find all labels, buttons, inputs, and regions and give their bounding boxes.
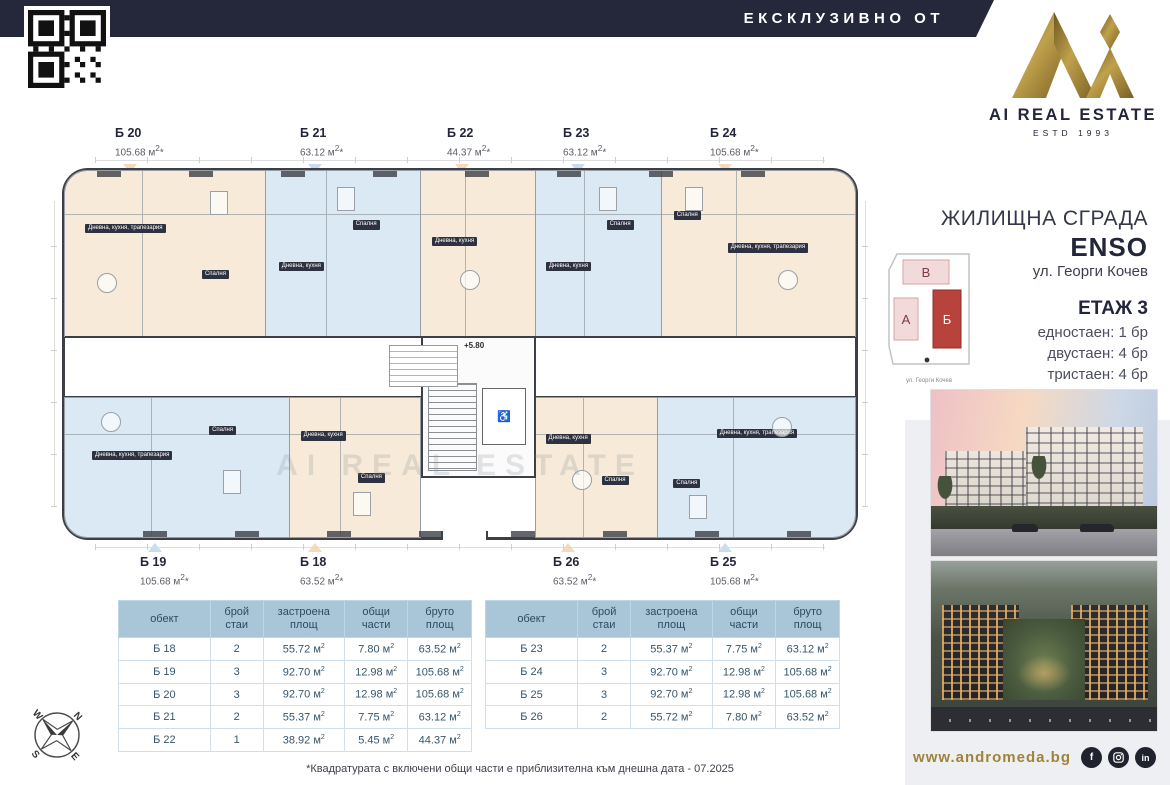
table-header: обектбройстаизастроенаплощобщи частибрут…	[486, 601, 840, 638]
table-furniture	[460, 270, 480, 290]
building-render	[945, 451, 1026, 514]
green-podium	[931, 506, 1157, 529]
cell-built-area: 38.92 м2	[263, 729, 344, 752]
svg-text:А: А	[902, 312, 911, 327]
linkedin-icon[interactable]: in	[1135, 747, 1156, 768]
cell-rooms: 2	[578, 638, 631, 661]
tree	[1030, 456, 1048, 482]
apartment-b19: Дневна, кухня, трапезария Спалня	[65, 398, 290, 537]
apartment-b23: Дневна, кухня Спалня	[536, 171, 662, 336]
building-type-label: ЖИЛИЩНА СГРАДА	[848, 207, 1148, 231]
cell-rooms: 3	[578, 661, 631, 684]
table-row: Б 23255.37 м27.75 м263.12 м2	[486, 638, 840, 661]
site-map-diagram: В А Б	[881, 250, 977, 372]
website-row: www.andromeda.bg f in	[900, 747, 1156, 768]
table-row: Б 21255.37 м27.75 м263.12 м2	[119, 706, 472, 729]
bed-furniture	[685, 187, 703, 211]
room-label: Дневна, кухня, трапезария	[728, 243, 808, 253]
column-header: обект	[119, 601, 211, 638]
room-label: Спалня	[607, 220, 634, 230]
entrance-glow	[1017, 655, 1071, 692]
cell-unit: Б 25	[486, 683, 578, 706]
cell-unit: Б 23	[486, 638, 578, 661]
area-table-left: обектбройстаизастроенаплощобщи частибрут…	[118, 600, 472, 752]
cell-common-area: 12.98 м2	[712, 661, 776, 684]
agency-logo: AI REAL ESTATE ESTD 1993	[978, 4, 1168, 138]
column-header: бройстаи	[210, 601, 263, 638]
room-label: Дневна, кухня	[279, 262, 324, 272]
tree	[936, 476, 954, 502]
cell-gross-area: 63.52 м2	[776, 706, 840, 729]
table-row: Б 25392.70 м212.98 м2105.68 м2	[486, 683, 840, 706]
cell-common-area: 7.75 м2	[712, 638, 776, 661]
column-header: застроенаплощ	[631, 601, 712, 638]
unit-label-b24: Б 24 105.68 м2*	[710, 126, 820, 173]
apartment-b24: Дневна, кухня, трапезария Спалня	[662, 171, 855, 336]
table-header: обектбройстаизастроенаплощобщи частибрут…	[119, 601, 472, 638]
cell-rooms: 2	[578, 706, 631, 729]
room-label: Дневна, кухня	[432, 237, 477, 247]
room-label: Дневна, кухня, трапезария	[92, 451, 172, 461]
cell-unit: Б 26	[486, 706, 578, 729]
logo-estd: ESTD 1993	[978, 128, 1168, 138]
column-header: брутоплощ	[776, 601, 840, 638]
facebook-icon[interactable]: f	[1081, 747, 1102, 768]
room-label: Дневна, кухня	[546, 434, 591, 444]
room-label: Спалня	[353, 220, 380, 230]
cell-gross-area: 105.68 м2	[776, 661, 840, 684]
car	[1012, 524, 1038, 532]
floor-plan: Дневна, кухня, трапезария Спалня Дневна,…	[62, 168, 858, 540]
cell-common-area: 12.98 м2	[712, 683, 776, 706]
table-row: Б 18255.72 м27.80 м263.52 м2	[119, 638, 472, 661]
site-map-street-label: ул. Георги Кочев	[881, 378, 977, 384]
cell-gross-area: 105.68 м2	[408, 661, 472, 684]
car	[1080, 524, 1114, 532]
compass-s: S	[29, 749, 42, 762]
cell-built-area: 55.72 м2	[631, 706, 712, 729]
table-furniture	[778, 270, 798, 290]
dimension-line	[95, 157, 825, 164]
level-mark: +5.80	[464, 341, 484, 350]
unit-label-b23: Б 23 63.12 м2*	[563, 126, 673, 173]
column-header: обект	[486, 601, 578, 638]
cell-built-area: 55.37 м2	[263, 706, 344, 729]
column-header: общи части	[344, 601, 408, 638]
area-table-right: обектбройстаизастроенаплощобщи частибрут…	[485, 600, 840, 729]
cell-unit: Б 21	[119, 706, 211, 729]
dimension-line	[51, 201, 58, 507]
logo-title: AI REAL ESTATE	[978, 106, 1168, 125]
cell-gross-area: 105.68 м2	[408, 683, 472, 706]
svg-text:В: В	[922, 265, 931, 280]
flyer-page: ЕКСКЛУЗИВНО ОТ AI REAL ESTATE ESTD 1993 …	[0, 0, 1170, 785]
cell-unit: Б 22	[119, 729, 211, 752]
wheelchair-icon: ♿	[497, 410, 511, 423]
table-furniture	[97, 273, 117, 293]
cell-common-area: 5.45 м2	[344, 729, 408, 752]
column-header: общи части	[712, 601, 776, 638]
cell-built-area: 55.37 м2	[631, 638, 712, 661]
cell-rooms: 3	[210, 661, 263, 684]
bed-furniture	[223, 470, 241, 494]
street	[931, 529, 1157, 556]
compass-rose: N E S W	[24, 702, 90, 768]
table-row: Б 26255.72 м27.80 м263.52 м2	[486, 706, 840, 729]
unit-mix-item: двустаен: 4 бр	[1038, 343, 1148, 364]
building-photo-aerial	[930, 560, 1158, 732]
street	[931, 707, 1157, 731]
unit-mix-item: едностаен: 1 бр	[1038, 322, 1148, 343]
exclusive-banner: ЕКСКЛУЗИВНО ОТ	[0, 0, 994, 37]
instagram-icon[interactable]	[1108, 747, 1129, 768]
banner-label: ЕКСКЛУЗИВНО ОТ	[744, 10, 944, 27]
apartment-b21: Дневна, кухня Спалня	[266, 171, 420, 336]
svg-text:Б: Б	[943, 312, 952, 327]
cell-unit: Б 24	[486, 661, 578, 684]
room-label: Спалня	[202, 270, 229, 280]
cell-gross-area: 63.12 м2	[776, 638, 840, 661]
compass-w: W	[30, 708, 45, 723]
cell-unit: Б 20	[119, 683, 211, 706]
apartment-b20: Дневна, кухня, трапезария Спалня	[65, 171, 266, 336]
room-label: Дневна, кухня	[301, 431, 346, 441]
dimension-line	[95, 544, 825, 551]
compass-icon: N E S W	[24, 702, 90, 768]
table-row: Б 20392.70 м212.98 м2105.68 м2	[119, 683, 472, 706]
apartment-b25: Дневна, кухня, трапезария Спалня	[658, 398, 856, 537]
cell-common-area: 7.80 м2	[344, 638, 408, 661]
room-label: Спалня	[674, 211, 701, 221]
unit-label-b21: Б 21 63.12 м2*	[300, 126, 410, 173]
cell-built-area: 92.70 м2	[263, 683, 344, 706]
cell-built-area: 92.70 м2	[631, 661, 712, 684]
unit-label-b20: Б 20 105.68 м2*	[115, 126, 225, 173]
cell-rooms: 2	[210, 638, 263, 661]
cell-rooms: 3	[578, 683, 631, 706]
bed-furniture	[210, 191, 228, 215]
site-map: В А Б ул. Георги Кочев	[881, 250, 977, 384]
building-entrance	[441, 531, 488, 540]
cell-built-area: 92.70 м2	[263, 661, 344, 684]
room-label: Спалня	[673, 479, 700, 489]
watermark: AI REAL ESTATE	[276, 449, 644, 483]
column-header: брутоплощ	[408, 601, 472, 638]
apartment-b22: Дневна, кухня	[421, 171, 536, 336]
table-row: Б 24392.70 м212.98 м2105.68 м2	[486, 661, 840, 684]
room-label: Дневна, кухня, трапезария	[85, 224, 165, 234]
plan-info-box	[389, 345, 458, 387]
room-label: Дневна, кухня	[546, 262, 591, 272]
cell-common-area: 7.80 м2	[712, 706, 776, 729]
cell-unit: Б 18	[119, 638, 211, 661]
column-header: бройстаи	[578, 601, 631, 638]
cell-rooms: 3	[210, 683, 263, 706]
table-row: Б 19392.70 м212.98 м2105.68 м2	[119, 661, 472, 684]
table-row: Б 22138.92 м25.45 м244.37 м2	[119, 729, 472, 752]
website-link[interactable]: www.andromeda.bg	[913, 749, 1071, 766]
cell-gross-area: 63.12 м2	[408, 706, 472, 729]
disclaimer-note: *Квадратурата с включени общи части е пр…	[140, 763, 900, 775]
room-label: Спалня	[209, 426, 236, 436]
cell-unit: Б 19	[119, 661, 211, 684]
cell-gross-area: 63.52 м2	[408, 638, 472, 661]
building-photo-sunset	[930, 389, 1158, 557]
unit-mix-item: тристаен: 4 бр	[1038, 364, 1148, 385]
elevator: ♿	[482, 388, 526, 445]
cell-built-area: 55.72 м2	[263, 638, 344, 661]
cell-rooms: 2	[210, 706, 263, 729]
qr-code-icon	[28, 10, 106, 88]
table-furniture	[101, 412, 121, 432]
cell-rooms: 1	[210, 729, 263, 752]
cell-gross-area: 105.68 м2	[776, 683, 840, 706]
cell-gross-area: 44.37 м2	[408, 729, 472, 752]
bed-furniture	[689, 495, 707, 519]
wall-piers	[97, 171, 824, 177]
qr-code	[24, 6, 110, 92]
cell-common-area: 12.98 м2	[344, 661, 408, 684]
bed-furniture	[599, 187, 617, 211]
unit-mix-list: едностаен: 1 бр двустаен: 4 бр тристаен:…	[1038, 322, 1148, 385]
column-header: застроенаплощ	[263, 601, 344, 638]
bed-furniture	[353, 492, 371, 516]
cell-built-area: 92.70 м2	[631, 683, 712, 706]
cell-common-area: 12.98 м2	[344, 683, 408, 706]
cell-common-area: 7.75 м2	[344, 706, 408, 729]
dimension-line	[862, 201, 869, 507]
unit-label-b22: Б 22 44.37 м2*	[447, 126, 557, 173]
mountain-a-logo-icon	[998, 4, 1148, 100]
bed-furniture	[337, 187, 355, 211]
